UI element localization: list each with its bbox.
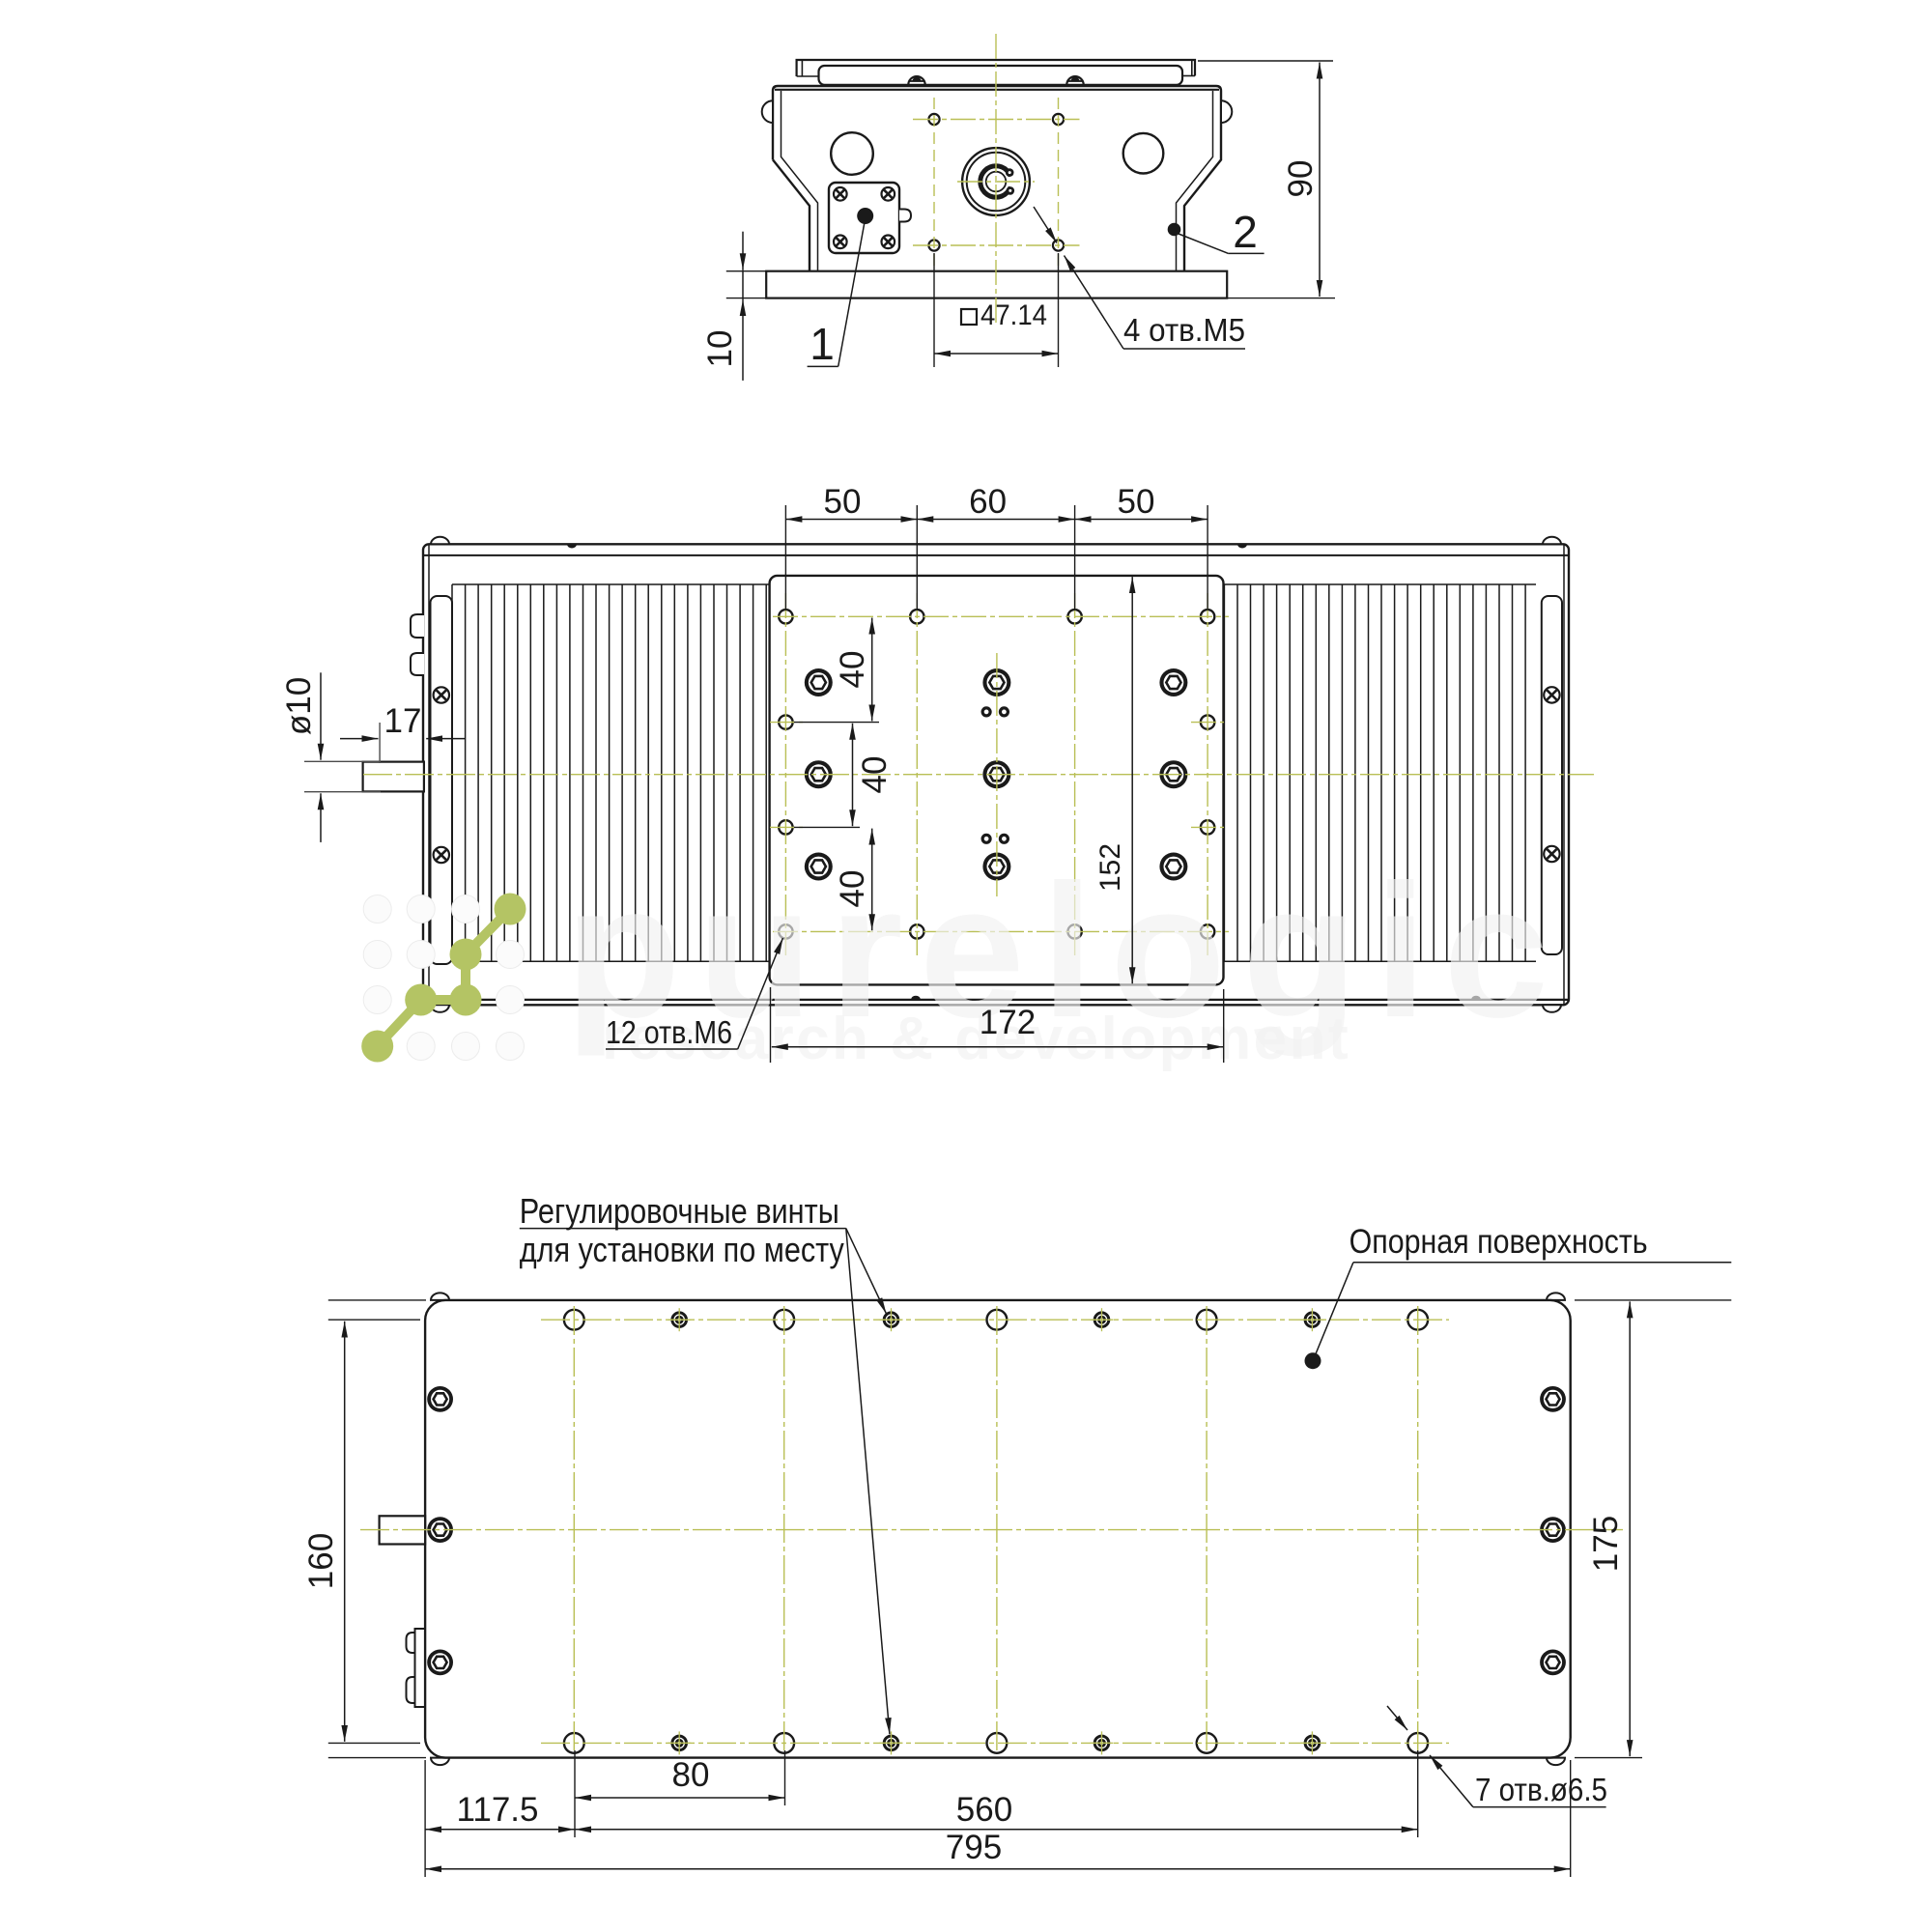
svg-text:90: 90 (1282, 160, 1320, 198)
svg-text:2: 2 (1233, 207, 1258, 257)
svg-text:7 отв.ø6.5: 7 отв.ø6.5 (1475, 1772, 1607, 1807)
svg-text:152: 152 (1094, 843, 1126, 892)
svg-text:175: 175 (1587, 1516, 1625, 1572)
svg-text:80: 80 (672, 1756, 710, 1794)
svg-text:172: 172 (980, 1004, 1036, 1041)
svg-text:Регулировочные винты: Регулировочные винты (520, 1191, 839, 1231)
svg-text:17: 17 (384, 702, 422, 740)
svg-text:4 отв.М5: 4 отв.М5 (1123, 312, 1245, 348)
svg-text:40: 40 (834, 651, 871, 689)
svg-text:Опорная поверхность: Опорная поверхность (1350, 1223, 1648, 1261)
svg-text:40: 40 (856, 756, 894, 794)
svg-text:10: 10 (701, 330, 739, 368)
svg-text:12 отв.М6: 12 отв.М6 (606, 1014, 732, 1050)
svg-text:для установки по месту: для установки по месту (520, 1230, 844, 1269)
svg-text:160: 160 (302, 1533, 340, 1589)
svg-text:1: 1 (810, 319, 835, 369)
svg-text:ø10: ø10 (280, 677, 318, 735)
svg-text:117.5: 117.5 (457, 1791, 539, 1829)
svg-text:50: 50 (1118, 483, 1155, 521)
svg-text:50: 50 (824, 483, 862, 521)
svg-text:60: 60 (969, 483, 1007, 521)
svg-text:47.14: 47.14 (980, 299, 1047, 331)
svg-text:560: 560 (956, 1791, 1012, 1829)
svg-text:40: 40 (834, 870, 871, 908)
svg-text:795: 795 (946, 1829, 1002, 1866)
